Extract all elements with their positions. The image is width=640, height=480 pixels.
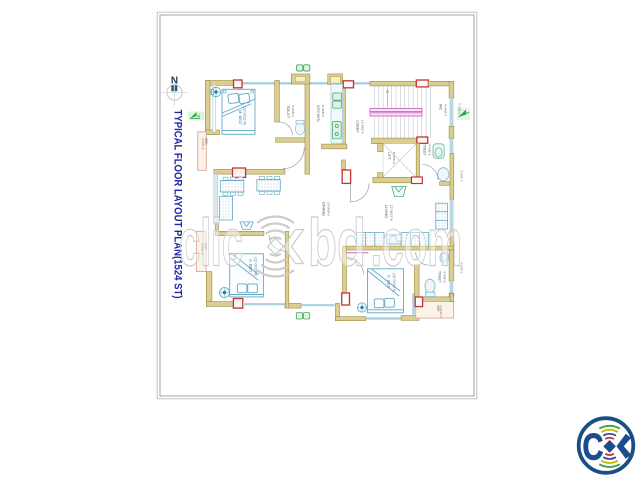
- svg-text:M. BED: M. BED: [238, 110, 243, 124]
- svg-text:TOILET: TOILET: [422, 144, 426, 156]
- svg-text:LOBBY: LOBBY: [355, 120, 359, 133]
- svg-text:(12'-0X12'-6): (12'-0X12'-6): [243, 106, 247, 125]
- svg-text:WC: WC: [438, 104, 442, 111]
- svg-text:(12'-0X10'-6): (12'-0X10'-6): [254, 257, 258, 276]
- svg-text:bd: bd: [308, 206, 366, 281]
- svg-text:S. BED: S. BED: [248, 259, 253, 272]
- svg-text:C: C: [583, 427, 604, 468]
- svg-text:TOILET: TOILET: [286, 105, 290, 119]
- svg-text:LIFT: LIFT: [387, 152, 391, 160]
- svg-text:2'-6X8'-6: 2'-6X8'-6: [458, 103, 462, 115]
- svg-text:clic: clic: [179, 206, 243, 281]
- svg-text:4'-0X9'-4: 4'-0X9'-4: [443, 104, 447, 116]
- svg-text:3'-0X8'-6: 3'-0X8'-6: [460, 170, 464, 182]
- svg-text:4'-6X8'-0: 4'-6X8'-0: [427, 144, 431, 156]
- svg-text:4'-0X5'-6: 4'-0X5'-6: [291, 105, 295, 117]
- svg-text:13'-0X6'-4: 13'-0X6'-4: [360, 120, 364, 134]
- svg-text:N: N: [171, 76, 178, 87]
- svg-text:5'-0X5'-6: 5'-0X5'-6: [392, 152, 396, 164]
- svg-text:KITCHEN: KITCHEN: [316, 105, 320, 122]
- svg-text:.com: .com: [371, 206, 462, 281]
- svg-text:8'-0X8'-6: 8'-0X8'-6: [321, 105, 325, 117]
- svg-text:4'-0X9'-6: 4'-0X9'-6: [201, 138, 205, 150]
- svg-text:3'-0X10'-6: 3'-0X10'-6: [439, 305, 443, 318]
